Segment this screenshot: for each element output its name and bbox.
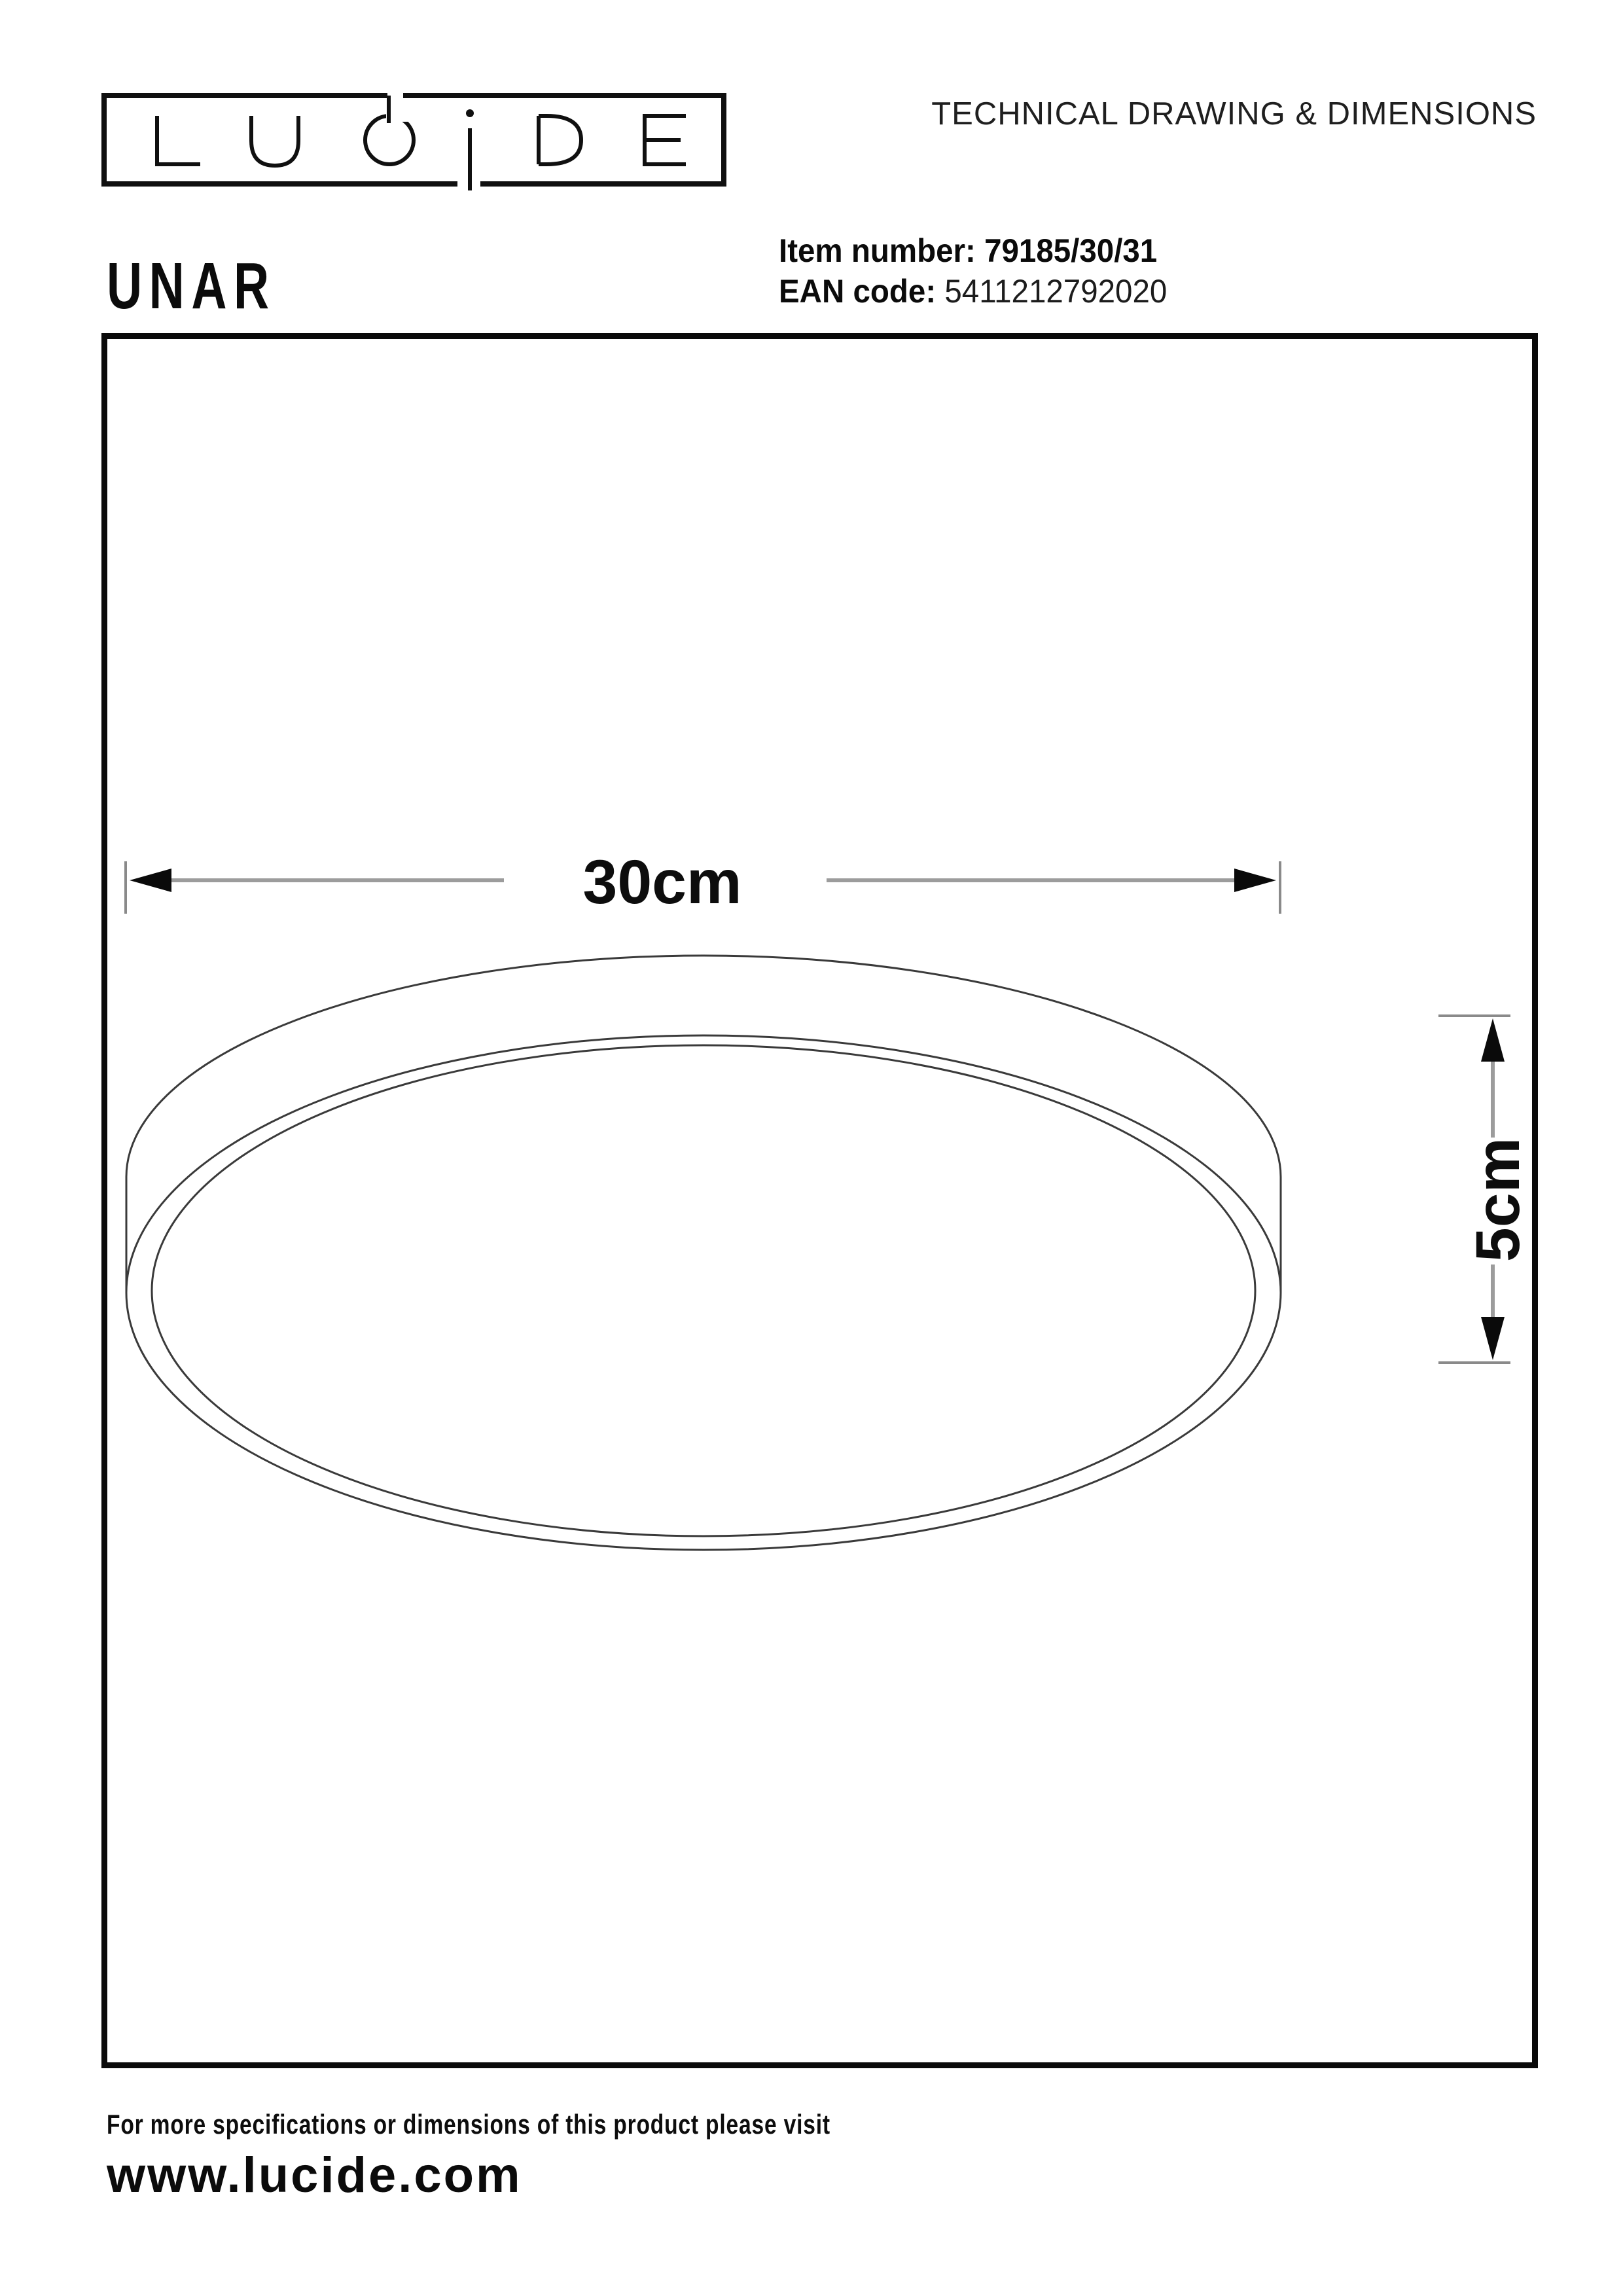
ceiling-lamp-drawing — [126, 956, 1281, 1550]
logo-letters — [157, 116, 686, 166]
logo-letter-L — [157, 116, 200, 164]
lamp-bottom-outer-rim — [126, 1035, 1281, 1550]
height-dimension: 5cm — [1438, 1016, 1533, 1363]
logo-letter-D — [539, 116, 581, 164]
datasheet-page: LUCIDE — [0, 0, 1623, 2296]
item-number-value: 79185/30/31 — [984, 232, 1157, 269]
lucide-logo: LUCIDE — [101, 96, 726, 190]
technical-drawing-canvas: LUCIDE — [0, 0, 1623, 2296]
logo-letter-C — [365, 116, 414, 164]
page-title: TECHNICAL DRAWING & DIMENSIONS — [931, 96, 1537, 132]
arrow-down-icon — [1481, 1317, 1505, 1360]
ean-code-value: 5411212792020 — [944, 273, 1167, 310]
website-url: www.lucide.com — [107, 2147, 522, 2204]
diameter-dimension-label: 30cm — [583, 848, 742, 917]
arrow-right-icon — [1234, 869, 1276, 892]
arrow-left-icon — [130, 869, 171, 892]
item-number-line: Item number: 79185/30/31 — [779, 230, 1167, 271]
logo-letter-E — [645, 116, 686, 164]
diameter-dimension: 30cm — [126, 848, 1280, 917]
drawing-frame — [105, 336, 1535, 2066]
logo-letter-U — [251, 116, 298, 166]
lamp-top-rim-arc — [126, 956, 1281, 1177]
product-name: UNAR — [107, 249, 276, 324]
product-codes: Item number: 79185/30/31 EAN code: 54112… — [779, 230, 1167, 312]
ean-code-line: EAN code: 5411212792020 — [779, 271, 1167, 312]
item-number-label: Item number: — [779, 232, 976, 269]
arrow-up-icon — [1481, 1018, 1505, 1062]
lamp-diffuser-edge — [152, 1045, 1255, 1536]
height-dimension-label: 5cm — [1463, 1138, 1533, 1262]
footer-note: For more specifications or dimensions of… — [107, 2109, 830, 2140]
logo-letter-i-dot — [466, 109, 474, 117]
ean-code-label: EAN code: — [779, 273, 936, 310]
